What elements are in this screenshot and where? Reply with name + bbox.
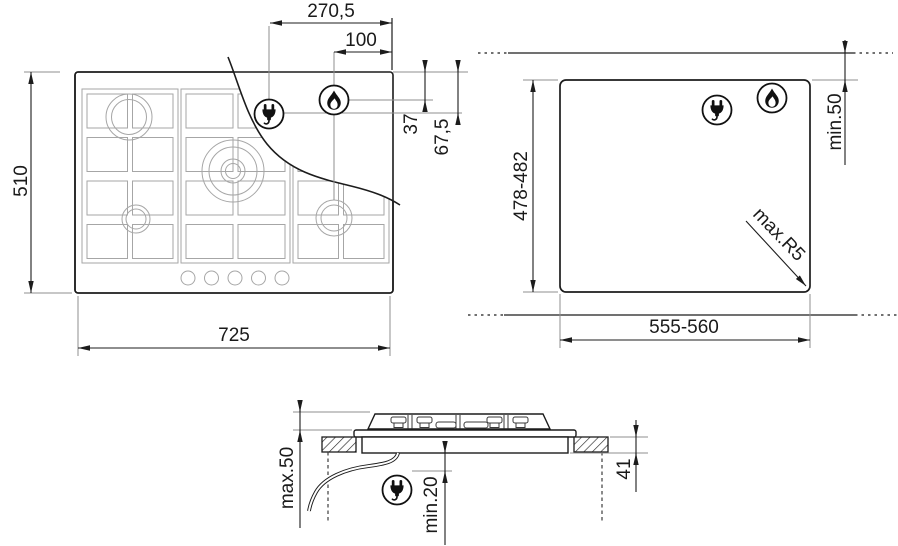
dim-burner-offset-x: 100	[345, 30, 377, 51]
control-knob	[275, 271, 289, 285]
installation-drawing: 270,5 100 37 67,5 510 725	[0, 0, 898, 546]
control-knob	[181, 271, 195, 285]
dim-recess-depth: 41	[614, 458, 635, 479]
worktop-section-left	[322, 437, 356, 452]
installation-section-view: max.50 min.20 41	[277, 404, 648, 545]
dim-cutout-depth: 478-482	[511, 151, 532, 221]
worktop-section-right	[574, 437, 608, 452]
gas-flame-icon	[758, 84, 787, 113]
power-plug-icon	[383, 476, 412, 505]
dim-cutout-width: 555-560	[649, 317, 719, 338]
gas-flame-icon	[320, 86, 349, 115]
technical-drawing-svg: 270,5 100 37 67,5 510 725	[0, 0, 898, 546]
control-knob	[252, 271, 266, 285]
hob-rim-plate	[354, 430, 576, 437]
power-plug-icon	[255, 100, 284, 129]
control-knob	[205, 271, 219, 285]
dim-plug-offset-x: 270,5	[307, 1, 355, 22]
dim-clearance-below: min.20	[421, 476, 442, 533]
dim-height-above-worktop: max.50	[277, 447, 298, 509]
power-plug-icon	[703, 96, 732, 125]
control-knob	[228, 271, 242, 285]
worktop-cutout-view: min.50 478-482 555-560 max.R5	[468, 40, 897, 348]
dim-hob-width: 725	[218, 325, 250, 346]
hob-tub	[362, 437, 568, 453]
dim-hob-depth: 510	[11, 165, 32, 197]
dim-burner-offset-y: 37	[401, 113, 422, 134]
dim-rear-clearance: min.50	[825, 93, 846, 150]
dim-plug-offset-y: 67,5	[432, 119, 453, 156]
hob-top-view: 270,5 100 37 67,5 510 725	[11, 1, 468, 356]
